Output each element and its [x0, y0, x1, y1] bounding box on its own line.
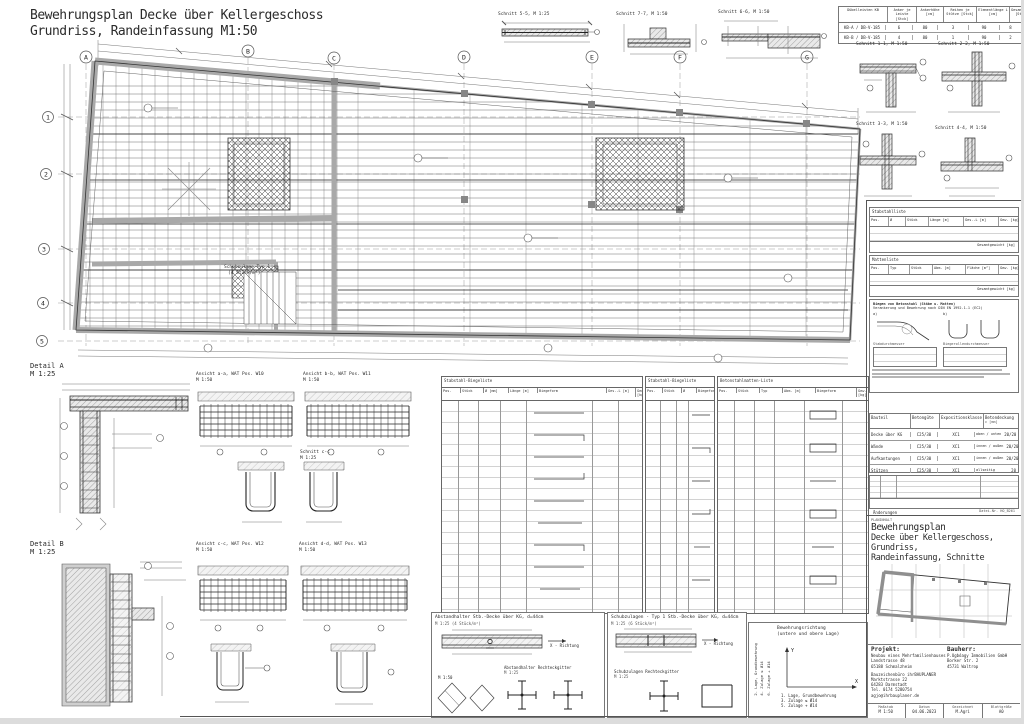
legend-x-labels: 1. Lage, Grundbewehrung 3. Zulage ≤ Ø14 …: [781, 693, 836, 709]
detail-b-title: Detail B: [30, 540, 64, 548]
col-dm: Ø [mm]: [483, 388, 508, 393]
anchor-r0c2: 80: [913, 25, 938, 30]
meta-row: Maßstab M 1:50 Datum 04.06.2023 Gezeichn…: [867, 703, 1020, 719]
schedule-table-3: Betonstahlmatten-Liste Pos. Stück Typ Ab…: [717, 376, 869, 614]
h-typ: Typ: [889, 265, 910, 274]
ansicht-aa-scale: M 1:50: [196, 378, 264, 384]
projekt-block: Projekt: Neubau eines Mehrfamilienhauses…: [871, 646, 941, 698]
h-laenge: Länge [m]: [929, 217, 964, 226]
mat-col-expo: Expositionsklasse: [940, 414, 984, 428]
section-6-6-drawing: [718, 16, 828, 68]
biege-a-drawing: [873, 316, 935, 342]
section-1-1: Schnitt 1-1, M 1:50: [856, 42, 932, 118]
office-line: agjo@ihrbauplaner.de: [871, 693, 941, 698]
file-number: Datei-Nr. HO_B261: [867, 509, 1015, 513]
mat-cell: 20/20: [1002, 432, 1018, 437]
schedule-table-1: Stabstahl-Biegeliste Pos. Stück Ø [mm] L…: [441, 376, 643, 614]
meta-value: M.Agri: [946, 709, 980, 714]
mat-cell: oben / unten: [975, 432, 1002, 436]
h-abm: Abm. [m]: [933, 265, 966, 274]
section-1-1-drawing: [856, 48, 932, 118]
col-stueck: Stück: [736, 388, 759, 393]
detail-b-drawing: [52, 556, 194, 716]
mattenliste-title: Mattenliste: [870, 256, 1018, 265]
anchor-r1c2: 80: [913, 35, 938, 40]
biege-b-drawing: [943, 316, 1005, 342]
h-pos: Pos.: [870, 265, 889, 274]
floor-plan-drawing: A B C D E F G 1 2 3 4 5 Schubzulage Typ …: [28, 38, 862, 372]
anchor-r1c4: 90: [969, 35, 1000, 40]
anchor-col-4: Elementlänge L [cm]: [977, 7, 1010, 22]
mat-cell: C25/30: [911, 456, 938, 461]
section-2-2: Schnitt 2-2, M 1:50: [938, 42, 1018, 118]
direction-legend: Bewehrungsrichtung (untere und obere Lag…: [748, 622, 868, 718]
mat-cell: XC1: [938, 444, 975, 449]
anchor-rail-table: Dübelleisten KB Anker je Leiste [Stck] A…: [838, 6, 1022, 44]
section-3-3: Schnitt 3-3, M 1:50: [856, 122, 932, 204]
detail-a-drawing: [52, 378, 194, 532]
material-table: Bauteil Betongüte Expositionsklasse Beto…: [869, 413, 1019, 473]
x-richtung-label-1: X - Richtung: [550, 643, 579, 648]
titleblock-title1: Bewehrungsplan: [867, 522, 1021, 533]
drawing-sheet: Bewehrungsplan Decke über Kellergeschoss…: [0, 0, 1024, 724]
legend-y-line1: 2. Lage, Grundbewehrung: [753, 643, 758, 696]
ansicht-dd-title: Ansicht d-d, WAT Pos. W13: [299, 542, 367, 548]
meta-massstab: Maßstab M 1:50: [867, 704, 905, 718]
col-gew: Gew. [kg]: [635, 388, 642, 397]
plan-note-line2: (4 Stück/m²): [228, 270, 261, 276]
grid-label-1: 1: [46, 114, 50, 122]
aenderungen-row: Änderungen: [869, 498, 1019, 509]
mat-cell: XC1: [938, 432, 975, 437]
anchor-r0c4: 90: [969, 25, 1000, 30]
legend-y-labels: 2. Lage, Grundbewehrung 4. Zulage ≤ Ø14 …: [753, 643, 771, 696]
col-biegeform: Biegeform: [696, 388, 714, 393]
frame-line-bottom: [180, 716, 866, 717]
legend-axes: Y X: [773, 643, 863, 691]
schedule-3-header: Pos. Stück Typ Abm. [m] Biegeform Gew. […: [718, 388, 868, 401]
section-7-7: Schnitt 7-7, M 1:50: [616, 12, 711, 62]
detail-a-label: Detail A M 1:25: [30, 362, 64, 379]
schubzulagen-box: Schubzulagen - Typ 1 Stb.-Decke über KG,…: [607, 612, 747, 718]
sheet-title: Bewehrungsplan Decke über Kellergeschoss…: [30, 8, 323, 41]
detail-b-label: Detail B M 1:25: [30, 540, 64, 557]
section-5-5: Schnitt 5-5, M 1:25: [498, 12, 608, 52]
schnitt-cc-title: Schnitt c-c: [300, 450, 330, 456]
anchor-r0c0: KB-A / DB-V-185: [839, 25, 886, 30]
diamond-diagram: [436, 681, 496, 715]
col-laenge: Länge [m]: [508, 388, 537, 393]
col-pos: Pos.: [442, 388, 460, 393]
ansicht-aa-label: Ansicht a-a, WAT Pos. W10 M 1:50: [196, 372, 264, 384]
anchor-r1c3: 1: [938, 35, 969, 40]
meta-blattgroesse: Blattgröße A0: [982, 704, 1021, 718]
mat-cell: allseitig: [975, 468, 1002, 472]
mattenliste-footer: Gesamtgewicht [kg]: [870, 285, 1018, 292]
mat-cell: Stützen: [870, 468, 911, 473]
mat-cell: Wände: [870, 444, 911, 449]
ansicht-aa-title: Ansicht a-a, WAT Pos. W10: [196, 372, 264, 378]
bend-shape-glyphs: [806, 405, 840, 605]
plan-note-line1: Schubzulage Typ 1: [224, 264, 270, 270]
ansicht-bb-drawing: [301, 386, 417, 458]
grid-label-3: 3: [42, 246, 46, 254]
ansicht-aa-drawing: [194, 386, 300, 458]
h-gew: Gew. [kg]: [999, 265, 1020, 274]
project-info: Projekt: Neubau eines Mehrfamilienhauses…: [867, 644, 1021, 703]
mattenliste-table: Mattenliste Pos. Typ Stück Abm. [m] Fläc…: [869, 255, 1019, 297]
stahlliste-footer: Gesamtgewicht [kg]: [870, 241, 1018, 248]
anchor-r1c5: 2: [1000, 35, 1021, 40]
schedule-2-body: [646, 401, 714, 613]
h-gew: Gew. [kg]: [999, 217, 1020, 226]
mat-cell: Aufkantungen: [870, 456, 911, 461]
anchor-r0c3: 3: [938, 25, 969, 30]
sheet-title-line1: Bewehrungsplan Decke über Kellergeschoss: [30, 8, 323, 24]
schedule-3-body: [718, 401, 868, 613]
bauherr-block: Bauherr: P.Ugbóagy Immobilien GmbH Borke…: [947, 646, 1017, 669]
grid-label-4: 4: [41, 300, 45, 308]
titleblock-title2: Decke über Kellergeschoss, Grundriss,: [867, 533, 1021, 553]
meta-value: 04.06.2023: [908, 709, 942, 714]
section-3-3-drawing: [856, 128, 932, 204]
section-7-7-drawing: [616, 18, 711, 62]
schedule-2-header: Pos. Stück Ø Biegeform: [646, 388, 714, 401]
ansicht-cc-scale: M 1:50: [196, 548, 264, 554]
anchor-r1c1: 4: [886, 35, 913, 40]
schedule-3-title: Betonstahlmatten-Liste: [718, 377, 868, 388]
right-panel: Stabstahlliste Pos. Ø Stück Länge [m] Ge…: [866, 200, 1021, 717]
h-pos: Pos.: [870, 217, 889, 226]
legend-x-axis: X: [855, 679, 858, 685]
col-biegeform: Biegeform: [815, 388, 856, 393]
legend-title2: (untere und obere Lage): [749, 632, 867, 638]
anchor-col-0: Dübelleisten KB: [839, 7, 888, 22]
legend-x-line3: 5. Zulage + Ø14: [781, 703, 836, 708]
revision-table: [869, 475, 1019, 499]
material-row: Decke über KG C25/30 XC1 oben / unten 20…: [870, 429, 1018, 441]
key-plan-thumbnail: [872, 560, 1016, 642]
ansicht-cc-title: Ansicht c-c, WAT Pos. W12: [196, 542, 264, 548]
col-stueck: Stück: [662, 388, 681, 393]
ansicht-bb-scale: M 1:50: [303, 378, 371, 384]
mat-cell: C25/30: [911, 468, 938, 473]
abstandhalter-box: Abstandhalter Stb.-Decke über KG, d=44cm…: [431, 612, 605, 718]
ansicht-bb-title: Ansicht b-b, WAT Pos. W11: [303, 372, 371, 378]
col-abm: Abm. [m]: [782, 388, 815, 393]
bauherr-line: 45731 Waltrop: [947, 664, 1017, 669]
h-stueck: Stück: [910, 265, 933, 274]
grid-label-d: D: [462, 54, 466, 62]
title-block: PLANINHALT Bewehrungsplan Decke über Kel…: [867, 515, 1021, 718]
mat-cell: Decke über KG: [870, 432, 911, 437]
anchor-r0c1: 6: [886, 25, 913, 30]
paper-edge-bottom: [0, 718, 1024, 724]
schubzulagen-title: Schubzulagen - Typ 1 Stb.-Decke über KG,…: [608, 613, 746, 621]
section-2-2-drawing: [938, 48, 1018, 118]
mat-cell: 20/20: [1004, 456, 1020, 461]
mat-col-betonguete: Betongüte: [911, 414, 940, 428]
material-row: Wände C25/30 XC1 innen / außen 20/20: [870, 441, 1018, 453]
grid-label-2: 2: [44, 171, 48, 179]
col-stueck: Stück: [460, 388, 483, 393]
h-flaeche: Fläche [m²]: [966, 265, 999, 274]
mat-cell: innen / außen: [975, 456, 1004, 460]
mat-col-deckung-sub: c [mm]: [985, 420, 1017, 424]
biege-diagram-a: a) Stabdurchmesser: [873, 312, 937, 367]
section-4-4-drawing: [935, 132, 1017, 204]
grid-label-e: E: [590, 54, 594, 62]
ansicht-bb-label: Ansicht b-b, WAT Pos. W11 M 1:50: [303, 372, 371, 384]
stahlliste-table: Stabstahlliste Pos. Ø Stück Länge [m] Ge…: [869, 207, 1019, 253]
anchor-col-3: Reihen je Stütze [Stck]: [944, 7, 977, 22]
mat-cell: 20/20: [1004, 444, 1020, 449]
section-5-5-drawing: [498, 18, 608, 52]
bauherr-label: Bauherr:: [947, 646, 1017, 653]
stirrup-section-left: [205, 642, 295, 714]
h-dm: Ø: [889, 217, 906, 226]
col-typ: Typ: [759, 388, 782, 393]
mat-cell: XC1: [938, 456, 975, 461]
detail-a-title: Detail A: [30, 362, 64, 370]
section-6-6: Schnitt 6-6, M 1:50: [718, 10, 828, 68]
anchor-r0c5: 8: [1000, 25, 1021, 30]
anchor-col-2: Ankerhöhe [cm]: [917, 7, 944, 22]
ansicht-cc-drawing: [194, 558, 294, 634]
projekt-label: Projekt:: [871, 646, 941, 653]
anchor-col-1: Anker je Leiste [Stck]: [888, 7, 917, 22]
h-stueck: Stück: [906, 217, 929, 226]
section-4-4: Schnitt 4-4, M 1:50: [935, 126, 1017, 204]
col-pos: Pos.: [718, 388, 736, 393]
bend-shape-glyphs: [690, 405, 712, 605]
schub-cross-diagrams: [644, 677, 740, 715]
legend-y-line3: 6. Zulage + Ø14: [766, 643, 771, 696]
schedule-2-title: Stabstahl-Biegeliste: [646, 377, 714, 388]
biege-table-a: [873, 347, 937, 367]
x-richtung-label-2: X - Richtung: [704, 641, 733, 646]
mat-col-bauteil: Bauteil: [870, 414, 911, 428]
mat-cell: C25/30: [911, 432, 938, 437]
biege-table-b: [943, 347, 1007, 367]
ansicht-dd-label: Ansicht d-d, WAT Pos. W13 M 1:50: [299, 542, 367, 554]
col-gesl: Ges.-L [m]: [606, 388, 635, 393]
stirrup-section-right: [325, 642, 425, 714]
col-pos: Pos.: [646, 388, 662, 393]
mat-cell: XC1: [938, 468, 975, 473]
grid-label-a: A: [84, 54, 88, 62]
grid-label-5: 5: [40, 338, 44, 346]
meta-value: A0: [985, 709, 1019, 714]
col-biegeform: Biegeform: [537, 388, 606, 393]
meta-value: M 1:50: [869, 709, 903, 714]
legend-y-line2: 4. Zulage ≤ Ø14: [759, 643, 764, 696]
legend-y-axis: Y: [791, 648, 794, 654]
ansicht-dd-scale: M 1:50: [299, 548, 367, 554]
grid-label-c: C: [332, 55, 336, 63]
schnitt-cc-drawing: [232, 460, 362, 530]
schedule-1-header: Pos. Stück Ø [mm] Länge [m] Biegeform Ge…: [442, 388, 642, 401]
ansicht-cc-label: Ansicht c-c, WAT Pos. W12 M 1:50: [196, 542, 264, 554]
schedule-1-body: [442, 401, 642, 613]
cross-bar-diagrams: [504, 675, 600, 715]
m150-label: M 1:50: [438, 675, 452, 680]
mat-cell: C25/30: [911, 444, 938, 449]
col-dm: Ø: [681, 388, 696, 393]
abstandhalter-title: Abstandhalter Stb.-Decke über KG, d=44cm: [432, 613, 604, 621]
legend-title1: Bewehrungsrichtung: [749, 623, 867, 632]
schedule-table-2: Stabstahl-Biegeliste Pos. Stück Ø Biegef…: [645, 376, 715, 614]
meta-gezeichnet: Gezeichnet M.Agri: [943, 704, 982, 718]
abstandhalter-sub-label: Abstandhalter Rechteckgitter M 1:25: [504, 665, 571, 675]
anchor-r1c0: KB-B / DB-V-185: [839, 35, 886, 40]
material-row: Aufkantungen C25/30 XC1 innen / außen 20…: [870, 453, 1018, 465]
ansicht-dd-drawing: [297, 558, 415, 634]
biegehinweise-box: Biegen von Betonstahl (Stäbe u. Matten) …: [869, 299, 1019, 393]
mat-cell: innen / außen: [975, 444, 1004, 448]
stahlliste-title: Stabstahlliste: [870, 208, 1018, 217]
meta-datum: Datum 04.06.2023: [905, 704, 944, 718]
grid-label-b: B: [246, 48, 250, 56]
bend-shape-glyphs: [530, 405, 590, 605]
biege-diagram-b: b) Biegerollendurchmesser: [943, 312, 1007, 367]
schedule-1-title: Stabstahl-Biegeliste: [442, 377, 642, 388]
mat-cell: 20: [1002, 468, 1018, 473]
h-gesl: Ges.-L [m]: [964, 217, 999, 226]
